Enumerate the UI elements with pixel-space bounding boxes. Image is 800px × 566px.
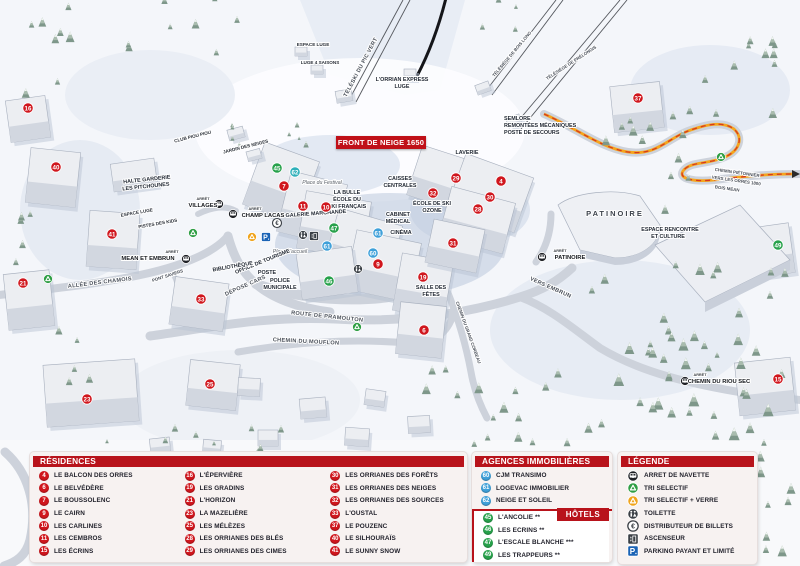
map-label: MUNICIPALE (263, 285, 297, 291)
item-label: L'ANCOLIE ** (498, 514, 540, 521)
elevator-icon (310, 232, 319, 241)
map-marker-23: 23 (82, 394, 92, 404)
legend-label: TRI SELECTIF + VERRE (644, 497, 718, 504)
bus-stop-icon (229, 210, 238, 219)
residence-item-9: 9LE CAIRN (30, 507, 176, 520)
list-marker-45: 45 (483, 513, 493, 523)
list-marker-23: 23 (185, 509, 195, 519)
map-marker-10: 10 (321, 202, 331, 212)
item-label: CJM TRANSIMO (496, 472, 547, 479)
map-label: ESPACE RENCONTRE (641, 227, 699, 233)
map-label: CHAMP LACAS (242, 213, 285, 219)
map-label: FÊTES (422, 290, 440, 298)
map-label: MEAN ET EMBRUN (121, 256, 174, 262)
list-marker-28: 28 (185, 534, 195, 544)
svg-text:16: 16 (25, 105, 32, 112)
map-marker-61: 61 (373, 228, 383, 238)
list-marker-33: 33 (330, 509, 340, 519)
map-marker-37: 37 (633, 93, 643, 103)
toilets-icon (299, 231, 308, 240)
list-marker-10: 10 (39, 521, 49, 531)
list-marker-41: 41 (330, 546, 340, 556)
residence-item-16: 16L'ÉPERVIÈRE (176, 470, 322, 483)
hotel-item-46: 46LES ECRINS ** (474, 524, 609, 537)
map-marker-47: 47 (329, 223, 339, 233)
legend-label: DISTRIBUTEUR DE BILLETS (644, 523, 733, 530)
agences-header: AGENCES IMMOBILIÈRES (475, 456, 609, 467)
item-label: NEIGE ET SOLEIL (496, 497, 552, 504)
svg-text:9: 9 (376, 261, 380, 268)
map-marker-61: 61 (322, 241, 332, 251)
legend-item-elevator: ASCENSEUR (618, 532, 757, 545)
hotel-item-47: 47L'ESCALE BLANCHE *** (474, 536, 609, 549)
item-label: LE SILHOURAÏS (345, 535, 396, 542)
map-label: ET CULTURE (651, 234, 685, 240)
svg-text:4: 4 (499, 178, 503, 185)
map-marker-25: 25 (205, 379, 215, 389)
list-marker-37: 37 (330, 521, 340, 531)
residence-item-19: 19LES GRADINS (176, 482, 322, 495)
recycle-green-icon (189, 229, 198, 238)
toilets-icon (354, 265, 363, 274)
item-label: LES GRADINS (200, 485, 245, 492)
residence-item-21: 21L'HORIZON (176, 495, 322, 508)
legend-label: TRI SELECTIF (644, 485, 688, 492)
legend-label: ARRET DE NAVETTE (644, 472, 709, 479)
item-label: L'ÉPERVIÈRE (200, 472, 243, 479)
map-label: POLICE (270, 278, 290, 284)
list-marker-25: 25 (185, 521, 195, 531)
residences-column-1: 4LE BALCON DES ORRES 6LE BELVÉDÈRE 7LE B… (30, 470, 176, 558)
item-label: LES ORRIANES DES FORÊTS (345, 472, 438, 479)
svg-text:60: 60 (370, 250, 377, 257)
residences-panel: RÉSIDENCES 4LE BALCON DES ORRES 6LE BELV… (30, 452, 467, 562)
resort-map-page: P € L'ORRIAN EXPRESSLUGETÉLÉSKI DU PIC V… (0, 0, 800, 566)
map-label: SEMLORE (504, 116, 531, 122)
map-label: POSTE DE SECOURS (504, 130, 560, 136)
residences-columns: 4LE BALCON DES ORRES 6LE BELVÉDÈRE 7LE B… (30, 470, 467, 558)
map-marker-29: 29 (451, 173, 461, 183)
map-label: ARRÊT (165, 249, 179, 254)
recycle-green-icon (44, 275, 53, 284)
parking-icon: P (262, 233, 271, 242)
item-label: LES TRAPPEURS ** (498, 552, 560, 559)
map-label: L'ORRIAN EXPRESS (376, 77, 429, 83)
map-label: CAISSES (388, 176, 412, 182)
svg-text:41: 41 (109, 231, 116, 238)
item-label: LES CARLINES (54, 523, 102, 530)
list-marker-9: 9 (39, 509, 49, 519)
svg-text:23: 23 (84, 396, 91, 403)
svg-text:11: 11 (300, 203, 307, 210)
map-label: LAVERIE (456, 150, 479, 156)
recycle-green-icon (628, 483, 638, 493)
agence-item-60: 60CJM TRANSIMO (472, 470, 612, 483)
map-label: PATINOIRE (555, 255, 586, 261)
item-label: L'HORIZON (200, 497, 236, 504)
residence-item-6: 6LE BELVÉDÈRE (30, 482, 176, 495)
legend-item-parking: P PARKING PAYANT ET LIMITÉ (618, 545, 757, 558)
map-marker-31: 31 (448, 238, 458, 248)
svg-text:21: 21 (20, 280, 27, 287)
agences-hotels-panel: AGENCES IMMOBILIÈRES 60CJM TRANSIMO 61LO… (472, 452, 612, 562)
residences-column-2: 16L'ÉPERVIÈRE 19LES GRADINS 21L'HORIZON … (176, 470, 322, 558)
legend-item-recycle-yellow: TRI SELECTIF + VERRE (618, 495, 757, 508)
toilets-icon (628, 508, 638, 518)
list-marker-6: 6 (39, 483, 49, 493)
svg-text:40: 40 (53, 164, 60, 171)
map-label: Place du Festival (302, 180, 342, 186)
svg-text:62: 62 (292, 169, 299, 176)
euro-atm-icon: € (628, 521, 638, 531)
map-marker-9: 9 (373, 259, 383, 269)
bus-stop-icon (182, 255, 191, 264)
svg-text:€: € (631, 524, 635, 531)
list-marker-16: 16 (185, 471, 195, 481)
residence-item-7: 7LE BOUSSOLENC (30, 495, 176, 508)
map-marker-45: 45 (272, 163, 282, 173)
map-label: PATINOIRE (586, 209, 644, 218)
map-label: CABINET (386, 212, 411, 218)
map-marker-28: 28 (473, 204, 483, 214)
legend-item-bus: ARRET DE NAVETTE (618, 470, 757, 483)
legend-item-recycle-green: TRI SELECTIF (618, 482, 757, 495)
svg-text:30: 30 (487, 194, 494, 201)
list-marker-40: 40 (330, 534, 340, 544)
map-marker-32: 32 (428, 188, 438, 198)
legend-label: ASCENSEUR (644, 535, 685, 542)
map-marker-15: 15 (773, 374, 783, 384)
list-marker-49: 49 (483, 550, 493, 560)
item-label: LE BALCON DES ORRES (54, 472, 133, 479)
bus-stop-icon (628, 471, 638, 481)
recycle-yellow-icon (628, 496, 638, 506)
map-marker-62: 62 (290, 167, 300, 177)
map-label: ESPACE LUGE (297, 42, 330, 47)
item-label: LES ÉCRINS (54, 548, 93, 555)
residence-item-37: 37LE POUZENC (321, 520, 467, 533)
item-label: LES ORRIANES DES NEIGES (345, 485, 436, 492)
hotel-item-49: 49LES TRAPPEURS ** (474, 549, 609, 562)
list-marker-46: 46 (483, 525, 493, 535)
map-label: CHEMIN DU RIOU SEC (688, 379, 751, 385)
residence-item-25: 25LES MÉLÈZES (176, 520, 322, 533)
map-marker-16: 16 (23, 103, 33, 113)
map-marker-19: 19 (418, 272, 428, 282)
map-label: OZONE (422, 208, 442, 214)
map-label: CENTRALES (384, 183, 417, 189)
svg-text:7: 7 (282, 183, 286, 190)
map-marker-60: 60 (368, 248, 378, 258)
list-marker-61: 61 (481, 483, 491, 493)
item-label: LE SUNNY SNOW (345, 548, 400, 555)
residence-item-32: 32LES ORRIANES DES SOURCES (321, 495, 467, 508)
map-marker-4: 4 (496, 176, 506, 186)
svg-text:15: 15 (775, 376, 782, 383)
parking-icon: P (628, 546, 638, 556)
item-label: LE CAIRN (54, 510, 85, 517)
item-label: L'ESCALE BLANCHE *** (498, 539, 574, 546)
list-marker-7: 7 (39, 496, 49, 506)
item-label: LE BOUSSOLENC (54, 497, 110, 504)
svg-text:29: 29 (453, 175, 460, 182)
list-marker-15: 15 (39, 546, 49, 556)
svg-text:31: 31 (450, 240, 457, 247)
recycle-yellow-icon (248, 233, 257, 242)
legend-list: ARRET DE NAVETTE TRI SELECTIF TRI SELECT… (618, 470, 757, 558)
residence-item-41: 41LE SUNNY SNOW (321, 545, 467, 558)
hotels-header: HÔTELS (557, 508, 609, 521)
map-marker-11: 11 (298, 201, 308, 211)
residence-item-29: 29LES ORRIANES DES CIMES (176, 545, 322, 558)
front-de-neige-banner: FRONT DE NEIGE 1650 (336, 136, 426, 149)
svg-text:37: 37 (635, 95, 642, 102)
list-marker-21: 21 (185, 496, 195, 506)
legend-label: PARKING PAYANT ET LIMITÉ (644, 548, 734, 555)
svg-text:19: 19 (420, 274, 427, 281)
residence-item-28: 28LES ORRIANES DES BLÉS (176, 532, 322, 545)
map-label: REMONTÉES MÉCANIQUES (504, 121, 577, 129)
svg-text:46: 46 (326, 278, 333, 285)
map-label: LUGE (395, 84, 410, 90)
recycle-green-icon (353, 323, 362, 332)
residence-item-10: 10LES CARLINES (30, 520, 176, 533)
list-marker-4: 4 (39, 471, 49, 481)
svg-text:6: 6 (422, 327, 426, 334)
list-marker-11: 11 (39, 534, 49, 544)
map-label: LA BULLE (334, 190, 361, 196)
list-marker-19: 19 (185, 483, 195, 493)
map-marker-30: 30 (485, 192, 495, 202)
item-label: LE BELVÉDÈRE (54, 485, 104, 492)
svg-text:61: 61 (375, 230, 382, 237)
residence-item-23: 23LA MAZELIÈRE (176, 507, 322, 520)
hotels-section: HÔTELS 45L'ANCOLIE ** 46LES ECRINS ** 47… (472, 509, 612, 561)
list-marker-47: 47 (483, 538, 493, 548)
residence-item-33: 33L'OUSTAL (321, 507, 467, 520)
map-label: MÉDICAL (386, 217, 411, 225)
svg-text:P: P (630, 547, 636, 556)
map-label: ÉCOLE DE SKI (413, 199, 452, 207)
map-label: LUGE 4 SAISONS (301, 60, 340, 65)
map-label: ARRÊT (248, 206, 262, 211)
agences-list: 60CJM TRANSIMO 61LOGEVAC IMMOBILIER 62NE… (472, 470, 612, 508)
map-marker-49: 49 (773, 240, 783, 250)
list-marker-60: 60 (481, 471, 491, 481)
elevator-icon (628, 534, 638, 544)
map-marker-7: 7 (279, 181, 289, 191)
svg-text:10: 10 (323, 204, 330, 211)
svg-text:25: 25 (207, 381, 214, 388)
item-label: LOGEVAC IMMOBILIER (496, 485, 569, 492)
residence-item-40: 40LE SILHOURAÏS (321, 532, 467, 545)
item-label: LES MÉLÈZES (200, 523, 246, 530)
list-marker-31: 31 (330, 483, 340, 493)
map-marker-6: 6 (419, 325, 429, 335)
map-marker-21: 21 (18, 278, 28, 288)
map-marker-40: 40 (51, 162, 61, 172)
bus-stop-icon (538, 253, 547, 262)
item-label: LES CEMBROS (54, 535, 102, 542)
item-label: LES ORRIANES DES BLÉS (200, 535, 284, 542)
legend-item-toilets: TOILETTE (618, 507, 757, 520)
residences-column-3: 30LES ORRIANES DES FORÊTS 31LES ORRIANES… (321, 470, 467, 558)
map-label: ARRÊT (553, 248, 567, 253)
residence-item-4: 4LE BALCON DES ORRES (30, 470, 176, 483)
recycle-green-icon (717, 153, 726, 162)
item-label: LE POUZENC (345, 523, 387, 530)
residence-item-31: 31LES ORRIANES DES NEIGES (321, 482, 467, 495)
map-label: ARRÊT (196, 196, 210, 201)
map-label: ÉCOLE DU (333, 195, 361, 203)
residence-item-30: 30LES ORRIANES DES FORÊTS (321, 470, 467, 483)
map-label: VILLAGES (189, 203, 218, 209)
agence-item-61: 61LOGEVAC IMMOBILIER (472, 482, 612, 495)
list-marker-32: 32 (330, 496, 340, 506)
legend-item-euro: € DISTRIBUTEUR DE BILLETS (618, 520, 757, 533)
svg-text:32: 32 (430, 190, 437, 197)
item-label: LA MAZELIÈRE (200, 510, 248, 517)
map-marker-33: 33 (196, 294, 206, 304)
svg-text:P: P (263, 234, 268, 241)
svg-text:49: 49 (775, 242, 782, 249)
residences-header: RÉSIDENCES (33, 456, 464, 467)
svg-text:28: 28 (475, 206, 482, 213)
svg-text:47: 47 (331, 225, 338, 232)
map-label: ARRÊT (693, 372, 707, 377)
legend-header: LÉGENDE (621, 456, 754, 467)
svg-text:33: 33 (198, 296, 205, 303)
list-marker-29: 29 (185, 546, 195, 556)
item-label: LES ORRIANES DES CIMES (200, 548, 287, 555)
legend-panel: LÉGENDE ARRET DE NAVETTE TRI SELECTIF TR… (618, 452, 757, 564)
residence-item-15: 15LES ÉCRINS (30, 545, 176, 558)
map-marker-41: 41 (107, 229, 117, 239)
map-marker-46: 46 (324, 276, 334, 286)
map-label: CINÉMA (390, 228, 411, 236)
item-label: L'OUSTAL (345, 510, 377, 517)
legend-label: TOILETTE (644, 510, 676, 517)
item-label: LES ORRIANES DES SOURCES (345, 497, 444, 504)
list-marker-62: 62 (481, 496, 491, 506)
item-label: LES ECRINS ** (498, 527, 544, 534)
map-label: SALLE DES (416, 285, 447, 291)
euro-atm-icon: € (273, 219, 282, 228)
svg-text:61: 61 (324, 243, 331, 250)
list-marker-30: 30 (330, 471, 340, 481)
agence-item-62: 62NEIGE ET SOLEIL (472, 495, 612, 508)
svg-text:45: 45 (274, 165, 281, 172)
residence-item-11: 11LES CEMBROS (30, 532, 176, 545)
